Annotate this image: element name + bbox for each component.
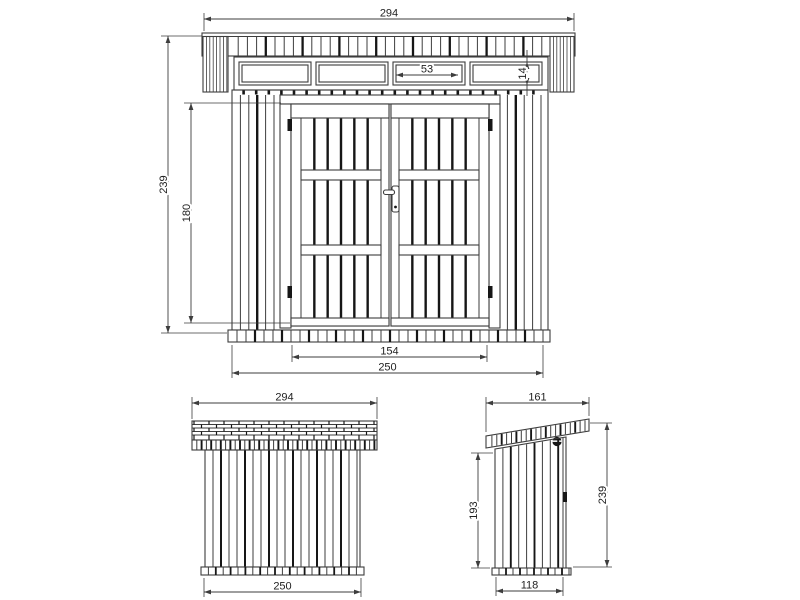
door-top-rail — [291, 104, 389, 118]
dimension-arrow — [605, 560, 610, 567]
dimension-arrow — [204, 17, 211, 22]
dimension-arrow — [370, 401, 377, 406]
dimension-arrow — [354, 590, 361, 595]
dimension-arrow — [556, 589, 563, 594]
transom-window — [470, 62, 542, 85]
door-bottom-rail — [391, 318, 489, 326]
dimension-side-overall-height: 239 — [573, 423, 612, 567]
side-wall-slat-pattern — [503, 439, 558, 568]
dimension-label-front-roof-width: 294 — [380, 8, 398, 20]
dimension-arrow — [189, 316, 194, 323]
dimension-arrow — [476, 561, 481, 568]
dimension-label-front-window-width: 53 — [421, 64, 433, 76]
dimension-label-side-wall-depth: 118 — [521, 580, 539, 592]
dimension-arrow — [567, 17, 574, 22]
keyhole — [394, 206, 397, 209]
dimension-arrow — [476, 453, 481, 460]
dimension-label-side-overall-height: 239 — [597, 486, 609, 504]
dimension-arrow — [232, 371, 239, 376]
door-hinge-icon — [288, 286, 293, 298]
dimension-side-rear-wall-height: 193 — [468, 453, 493, 568]
dimension-arrow — [486, 401, 493, 406]
front-wall-right-slat-pattern — [507, 95, 541, 330]
dimension-arrow — [192, 401, 199, 406]
dimension-arrow — [204, 590, 211, 595]
dimension-label-front-wall-width: 250 — [378, 362, 396, 374]
dimension-label-front-total-height: 239 — [158, 175, 170, 193]
door-mid-rail — [301, 170, 381, 180]
dimension-arrow — [605, 423, 610, 430]
front-wall-left-slat-pattern — [240, 95, 274, 330]
dimension-arrow — [582, 401, 589, 406]
door-bottom-rail — [291, 318, 389, 326]
dimension-arrow — [480, 355, 487, 360]
door-header-beam — [280, 95, 500, 104]
dimension-arrow — [166, 326, 171, 333]
dimension-label-rear-wall-width: 250 — [273, 581, 291, 593]
door-hinge-icon — [488, 286, 493, 298]
door-hinge-icon — [488, 119, 493, 131]
rear-sill-tick-pattern — [208, 567, 356, 575]
front-wall-outline — [232, 90, 548, 330]
dimension-arrow — [292, 355, 299, 360]
rear-elevation-view — [192, 421, 377, 575]
dimension-label-front-door-opening-width: 154 — [380, 346, 398, 358]
side-wall-outline — [495, 437, 566, 568]
dimension-rear-wall-width: 250 — [204, 578, 361, 597]
door-leaf-left — [291, 104, 389, 326]
front-sill-tick-pattern — [237, 330, 543, 342]
dimension-arrow — [496, 589, 503, 594]
rear-wall-outline — [205, 450, 360, 567]
wall-top-tick-strip — [244, 91, 534, 95]
door-hinge-icon — [288, 119, 293, 131]
transom-window — [316, 62, 388, 85]
door-mid-rail — [301, 245, 381, 255]
transom-window — [239, 62, 311, 85]
door-leaf-right — [391, 104, 489, 326]
side-elevation-view — [486, 419, 589, 575]
dimension-label-rear-roof-width: 294 — [275, 392, 293, 404]
door-mid-rail — [399, 245, 479, 255]
door-mid-rail — [399, 170, 479, 180]
side-sill-band — [492, 568, 571, 575]
dimension-arrow — [189, 103, 194, 110]
dimension-label-side-rear-wall-height: 193 — [468, 501, 480, 519]
shed-technical-drawing: 2942391805314154250294250161193239118 — [0, 0, 800, 600]
door-top-rail — [391, 104, 489, 118]
dimension-front-door-opening-width: 154 — [292, 345, 487, 362]
dimension-label-front-window-height: 14 — [517, 67, 529, 79]
dimension-label-front-door-height: 180 — [181, 204, 193, 222]
dimension-rear-roof-width: 294 — [192, 392, 377, 420]
dimension-arrow — [536, 371, 543, 376]
dimension-side-wall-depth: 118 — [496, 577, 563, 596]
rear-wall-slat-pattern — [213, 451, 357, 567]
dimension-arrow — [166, 36, 171, 43]
rear-fascia-strip — [192, 440, 377, 450]
handle-lever — [384, 190, 395, 195]
dimension-front-roof-width: 294 — [204, 8, 574, 32]
side-handle-icon — [563, 492, 567, 502]
dimension-label-side-roof-depth: 161 — [528, 392, 546, 404]
corner-post-hatch — [206, 37, 226, 93]
